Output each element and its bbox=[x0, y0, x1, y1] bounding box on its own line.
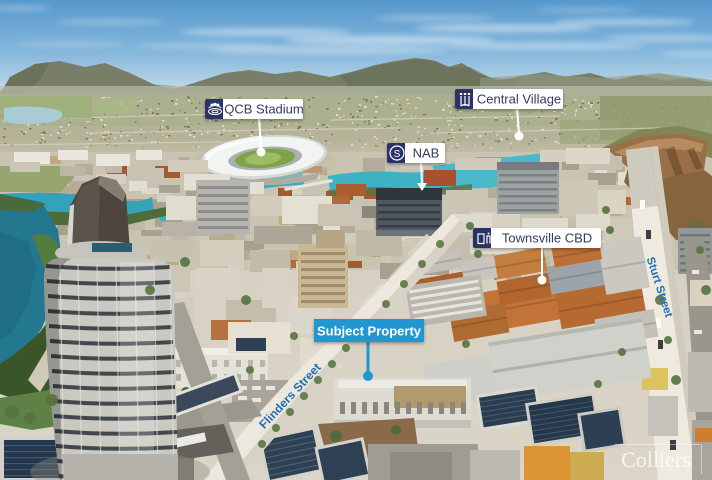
svg-text:Townsville CBD: Townsville CBD bbox=[502, 231, 592, 246]
svg-text:NAB: NAB bbox=[413, 146, 440, 161]
svg-text:QCB Stadium: QCB Stadium bbox=[224, 102, 303, 117]
svg-text:Subject Property: Subject Property bbox=[317, 324, 422, 339]
svg-text:Central Village: Central Village bbox=[477, 92, 561, 107]
svg-text:S: S bbox=[394, 149, 401, 160]
svg-text:Colliers: Colliers bbox=[621, 447, 691, 472]
